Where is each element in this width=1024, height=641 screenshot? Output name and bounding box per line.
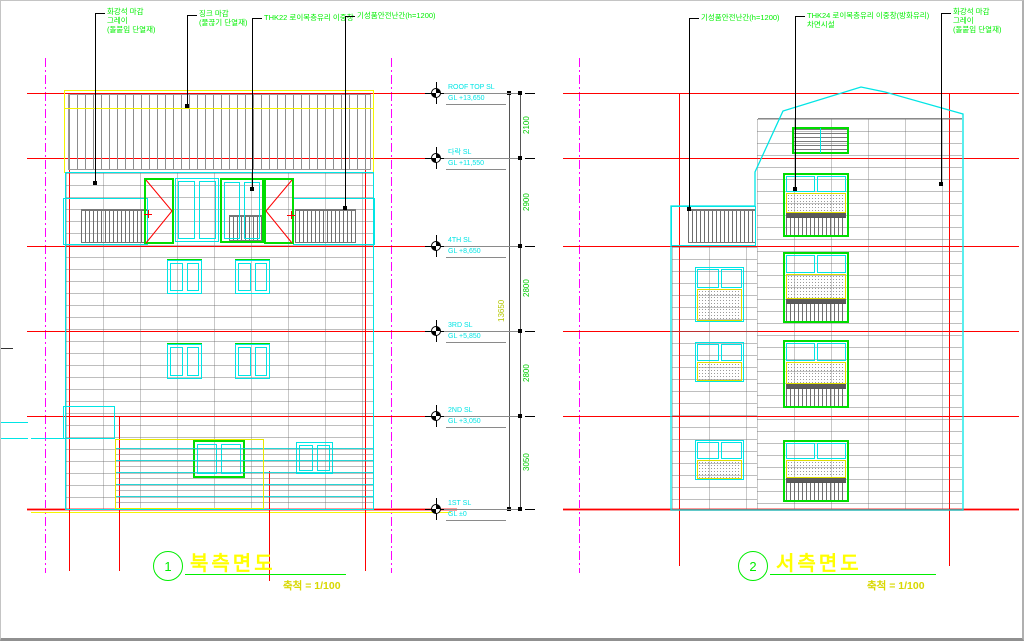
level-text-line bbox=[446, 257, 506, 258]
dimension-tick bbox=[518, 329, 522, 333]
annotation-label: 화강석 마감 그레이 (돌붙임 단열재) bbox=[107, 7, 155, 34]
window bbox=[220, 178, 264, 243]
leader-line bbox=[941, 13, 951, 14]
view-title: 서측면도 bbox=[776, 547, 862, 576]
datum-icon bbox=[431, 411, 441, 421]
level-elevation: GL +8,650 bbox=[448, 248, 481, 256]
window-with-railing bbox=[783, 340, 849, 408]
level-text-line bbox=[444, 158, 522, 159]
leader-dot bbox=[185, 104, 189, 108]
railing bbox=[81, 209, 147, 243]
cad-sheet: ROOF TOP SL GL +13,650 다락 SL GL +11,550 … bbox=[0, 0, 1024, 641]
leader-dot bbox=[343, 206, 347, 210]
level-name: 3RD SL bbox=[448, 322, 473, 330]
ground-finish-line bbox=[31, 512, 451, 513]
level-tick bbox=[525, 158, 535, 159]
roof-finish-line bbox=[64, 108, 374, 109]
dimension-tick bbox=[518, 91, 522, 95]
level-tick bbox=[525, 93, 535, 94]
level-text-line bbox=[446, 520, 506, 521]
window bbox=[175, 178, 219, 242]
view-title: 북측면도 bbox=[190, 547, 276, 576]
view-number: 1 bbox=[164, 559, 171, 574]
leader-line bbox=[689, 18, 690, 209]
dimension-value: 3050 bbox=[522, 440, 534, 484]
leader-line bbox=[689, 18, 699, 19]
leader-line bbox=[187, 15, 197, 16]
railing bbox=[688, 209, 755, 243]
dimension-value: 2100 bbox=[522, 105, 534, 145]
edge-tick bbox=[1, 422, 28, 423]
leader-line bbox=[345, 16, 355, 17]
dimension-tick bbox=[518, 507, 522, 511]
level-elevation: GL +5,850 bbox=[448, 333, 481, 341]
datum-icon bbox=[431, 88, 441, 98]
level-tick bbox=[525, 331, 535, 332]
level-text-line bbox=[446, 342, 506, 343]
window-hatched bbox=[695, 267, 744, 322]
leader-dot bbox=[939, 182, 943, 186]
level-name: 4TH SL bbox=[448, 237, 472, 245]
annotation-label: 화강석 마감 그레이 (돌붙임 단열재) bbox=[953, 7, 1001, 34]
level-name: 다락 SL bbox=[448, 149, 471, 157]
window bbox=[235, 344, 270, 379]
datum-icon bbox=[431, 153, 441, 163]
window-hatched bbox=[695, 342, 744, 382]
leader-dot bbox=[250, 187, 254, 191]
leader-line bbox=[252, 18, 262, 19]
dimension-tick bbox=[518, 244, 522, 248]
leader-line bbox=[187, 15, 188, 106]
leader-dot bbox=[93, 181, 97, 185]
level-elevation: GL ±0 bbox=[448, 511, 467, 519]
level-text-line bbox=[444, 416, 522, 417]
leader-line bbox=[95, 13, 105, 14]
annotation-label: THK22 로이복층유리 이중창 bbox=[264, 13, 354, 22]
annotation-label: THK24 로이복층유리 이중창(방화유리) 차면시설 bbox=[807, 11, 929, 29]
title-underline bbox=[185, 574, 346, 575]
window-with-railing bbox=[783, 252, 849, 323]
dimension-value: 2800 bbox=[522, 351, 534, 395]
view-number-bubble: 1 bbox=[153, 551, 183, 581]
level-line bbox=[563, 93, 1019, 94]
grid-line-vertical bbox=[391, 58, 392, 573]
title-underline bbox=[770, 574, 936, 575]
dimension-value: 2800 bbox=[522, 266, 534, 310]
edge-tick bbox=[1, 348, 13, 349]
dimension-line-total bbox=[509, 93, 510, 509]
leader-dot bbox=[793, 187, 797, 191]
leader-line bbox=[795, 16, 805, 17]
view-number-bubble: 2 bbox=[738, 551, 768, 581]
datum-icon bbox=[431, 326, 441, 336]
level-text-line bbox=[444, 246, 522, 247]
dimension-total: 13650 bbox=[497, 287, 509, 335]
view-number: 2 bbox=[749, 559, 756, 574]
leader-line bbox=[95, 13, 96, 184]
level-tick bbox=[525, 509, 535, 510]
level-line bbox=[563, 509, 1019, 510]
level-text-line bbox=[446, 169, 506, 170]
railing bbox=[295, 209, 356, 243]
dimension-tick bbox=[518, 414, 522, 418]
datum-icon bbox=[431, 504, 441, 514]
door-handle-mark bbox=[287, 211, 295, 219]
leader-line bbox=[941, 13, 942, 184]
scale-label: 축척 = 1/100 bbox=[283, 578, 341, 593]
window-with-railing bbox=[783, 173, 849, 237]
scale-label: 축척 = 1/100 bbox=[867, 578, 925, 593]
finish-zone-outline bbox=[115, 439, 264, 509]
annotation-label: 징크 마감 (물끊기 단열재) bbox=[199, 9, 247, 27]
level-elevation: GL +11,550 bbox=[448, 160, 484, 168]
level-name: 2ND SL bbox=[448, 407, 473, 415]
leader-line bbox=[252, 18, 253, 189]
dimension-tick bbox=[518, 156, 522, 160]
window bbox=[235, 260, 270, 294]
level-name: 1ST SL bbox=[448, 500, 471, 508]
level-tick bbox=[525, 416, 535, 417]
datum-icon bbox=[431, 241, 441, 251]
leader-dot bbox=[687, 207, 691, 211]
level-text-line bbox=[444, 509, 522, 510]
level-elevation: GL +13,650 bbox=[448, 95, 485, 103]
grid-line-vertical bbox=[579, 58, 580, 573]
dimension-value: 2900 bbox=[522, 180, 534, 224]
annotation-label: 기성품안전난간(h=1200) bbox=[701, 13, 780, 22]
edge-tick bbox=[1, 438, 28, 439]
annotation-label: 기성품안전난간(h=1200) bbox=[357, 11, 436, 20]
window-with-railing bbox=[783, 440, 849, 502]
window bbox=[167, 260, 202, 294]
level-text-line bbox=[446, 427, 506, 428]
canopy-step-line bbox=[31, 438, 63, 439]
window bbox=[167, 344, 202, 379]
level-text-line bbox=[446, 104, 506, 105]
window-mullion bbox=[820, 128, 821, 153]
entrance-canopy bbox=[63, 406, 115, 439]
level-tick bbox=[525, 246, 535, 247]
roof-hatch bbox=[68, 94, 371, 170]
roof-eave-line bbox=[758, 118, 962, 119]
leader-line bbox=[345, 16, 346, 208]
window-hatched bbox=[695, 440, 744, 480]
leader-line bbox=[795, 16, 796, 189]
level-text-line bbox=[444, 331, 522, 332]
level-elevation: GL +3,050 bbox=[448, 418, 481, 426]
level-text-line bbox=[444, 93, 522, 94]
door-handle-mark bbox=[144, 210, 152, 218]
grid-line-vertical bbox=[45, 58, 46, 573]
level-name: ROOF TOP SL bbox=[448, 84, 495, 92]
